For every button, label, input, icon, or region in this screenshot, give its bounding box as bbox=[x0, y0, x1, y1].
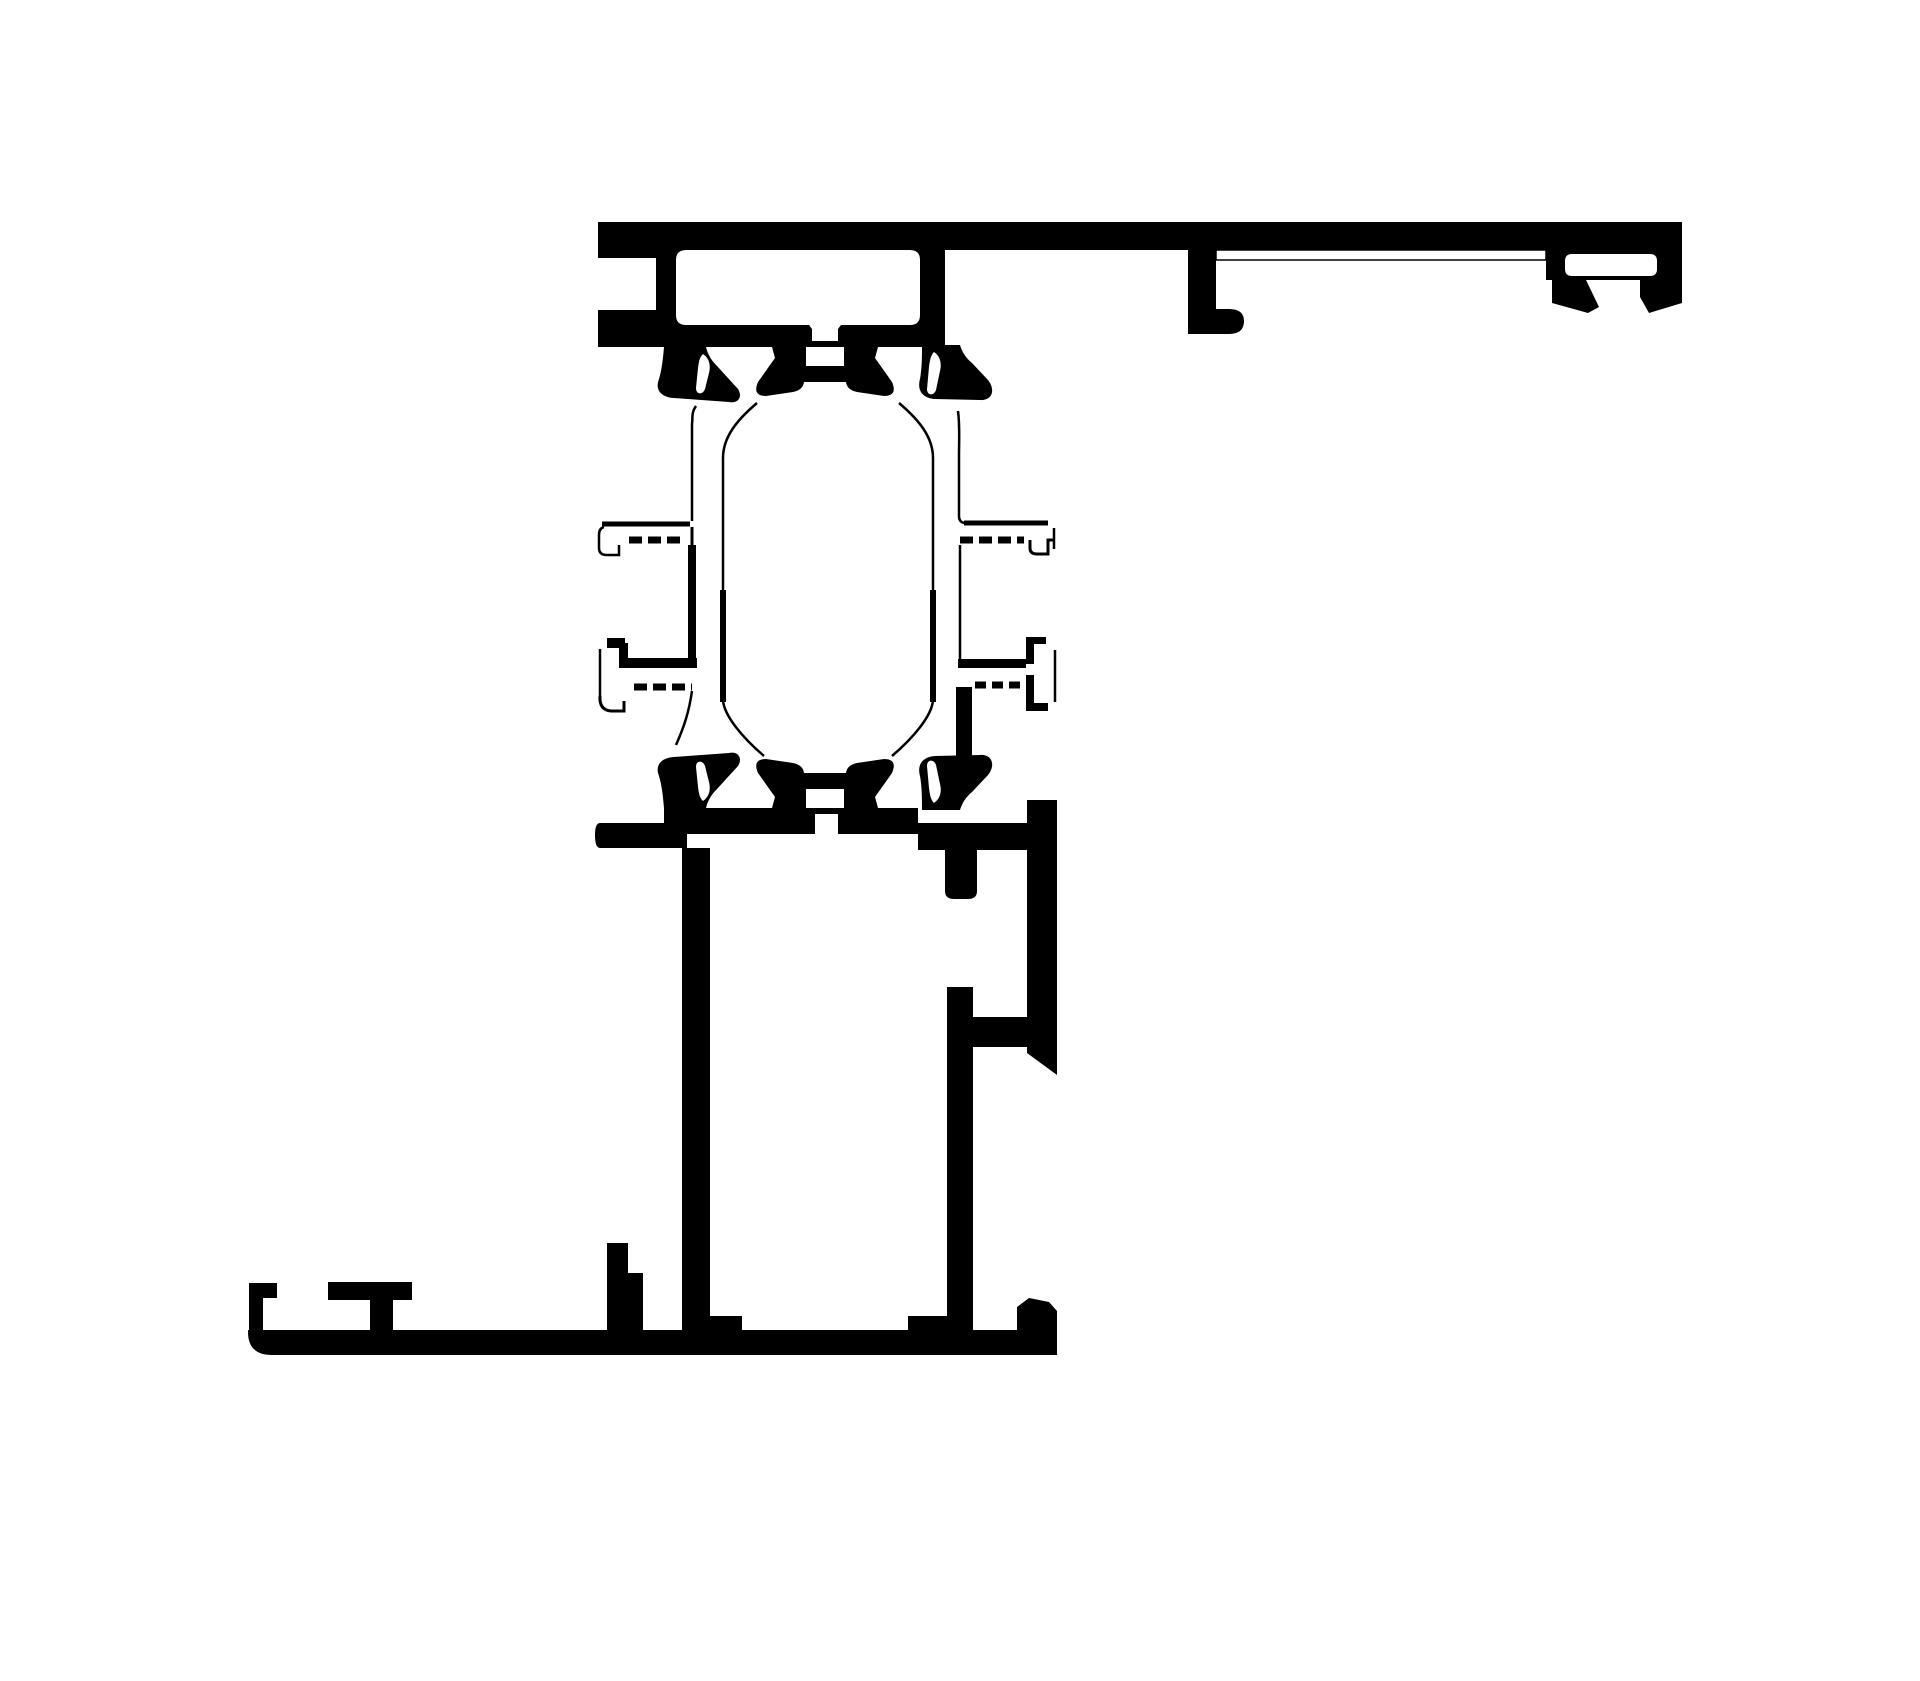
sill-outer-right-wall-shape bbox=[1027, 800, 1057, 1075]
top-rail-and-chamber-shape bbox=[598, 222, 1682, 347]
accessory-block-right-end-shape bbox=[1546, 250, 1682, 280]
sill-stub-shape bbox=[945, 850, 977, 899]
sill-right-arm-shape bbox=[973, 1017, 1027, 1047]
hook-top-right-j bbox=[1030, 540, 1054, 554]
base-step-right-shape bbox=[908, 1316, 948, 1332]
hook-top-left-j bbox=[599, 527, 619, 555]
gasket-bottom-right-shape bbox=[919, 755, 992, 810]
gasket-stem-right-shape bbox=[956, 687, 972, 758]
glazing-line-left-bottom bbox=[723, 700, 764, 756]
profile-cross-section-drawing bbox=[0, 0, 1920, 1681]
base-mid-tab-shape bbox=[328, 1282, 412, 1332]
profile-cross-section-page bbox=[0, 0, 1920, 1681]
glazing-line-left-top bbox=[723, 403, 757, 592]
interlock-right-lower-hook-shape bbox=[1026, 675, 1048, 711]
interlock-left-lower-rail-shape bbox=[607, 638, 697, 668]
bottom-lip-outline-shape bbox=[1216, 250, 1546, 260]
sash-curve-left-bottom bbox=[676, 691, 692, 745]
interlock-right-lower-rail-shape bbox=[958, 659, 1026, 668]
glazing-line-right-top bbox=[899, 403, 933, 592]
fin-left-shape bbox=[1552, 280, 1599, 313]
sill-top-wall-left-shape bbox=[664, 808, 918, 834]
fin-right-shape bbox=[1640, 280, 1682, 313]
sill-left-wall-shape bbox=[682, 848, 710, 1332]
thermal-bridge-top-shape bbox=[756, 347, 894, 396]
sash-line-right-outer bbox=[958, 411, 966, 523]
track-hook-leg-shape bbox=[1188, 250, 1244, 334]
sill-right-bar-shape bbox=[947, 987, 973, 1332]
thermal-bridge-bottom-shape bbox=[756, 759, 894, 808]
gasket-top-right-shape bbox=[919, 345, 992, 400]
base-riser-tab-shape bbox=[249, 1283, 277, 1332]
interlock-right-upper-tab-shape bbox=[1026, 637, 1046, 664]
filled-profile-shapes bbox=[248, 222, 1682, 1355]
sill-top-wall-right-shape bbox=[918, 823, 1027, 850]
glazing-line-right-bottom bbox=[892, 700, 933, 756]
base-up-tab-shape bbox=[607, 1243, 643, 1332]
sash-line-left-outer bbox=[692, 406, 696, 521]
base-step-left-shape bbox=[707, 1316, 742, 1332]
outlined-profile-shapes bbox=[1216, 250, 1546, 260]
thin-line-sash-outlines bbox=[599, 403, 1055, 756]
gasket-top-left-shape bbox=[658, 347, 740, 402]
hook-bot-left-j bbox=[600, 696, 624, 711]
gasket-bottom-left-shape bbox=[658, 753, 740, 808]
